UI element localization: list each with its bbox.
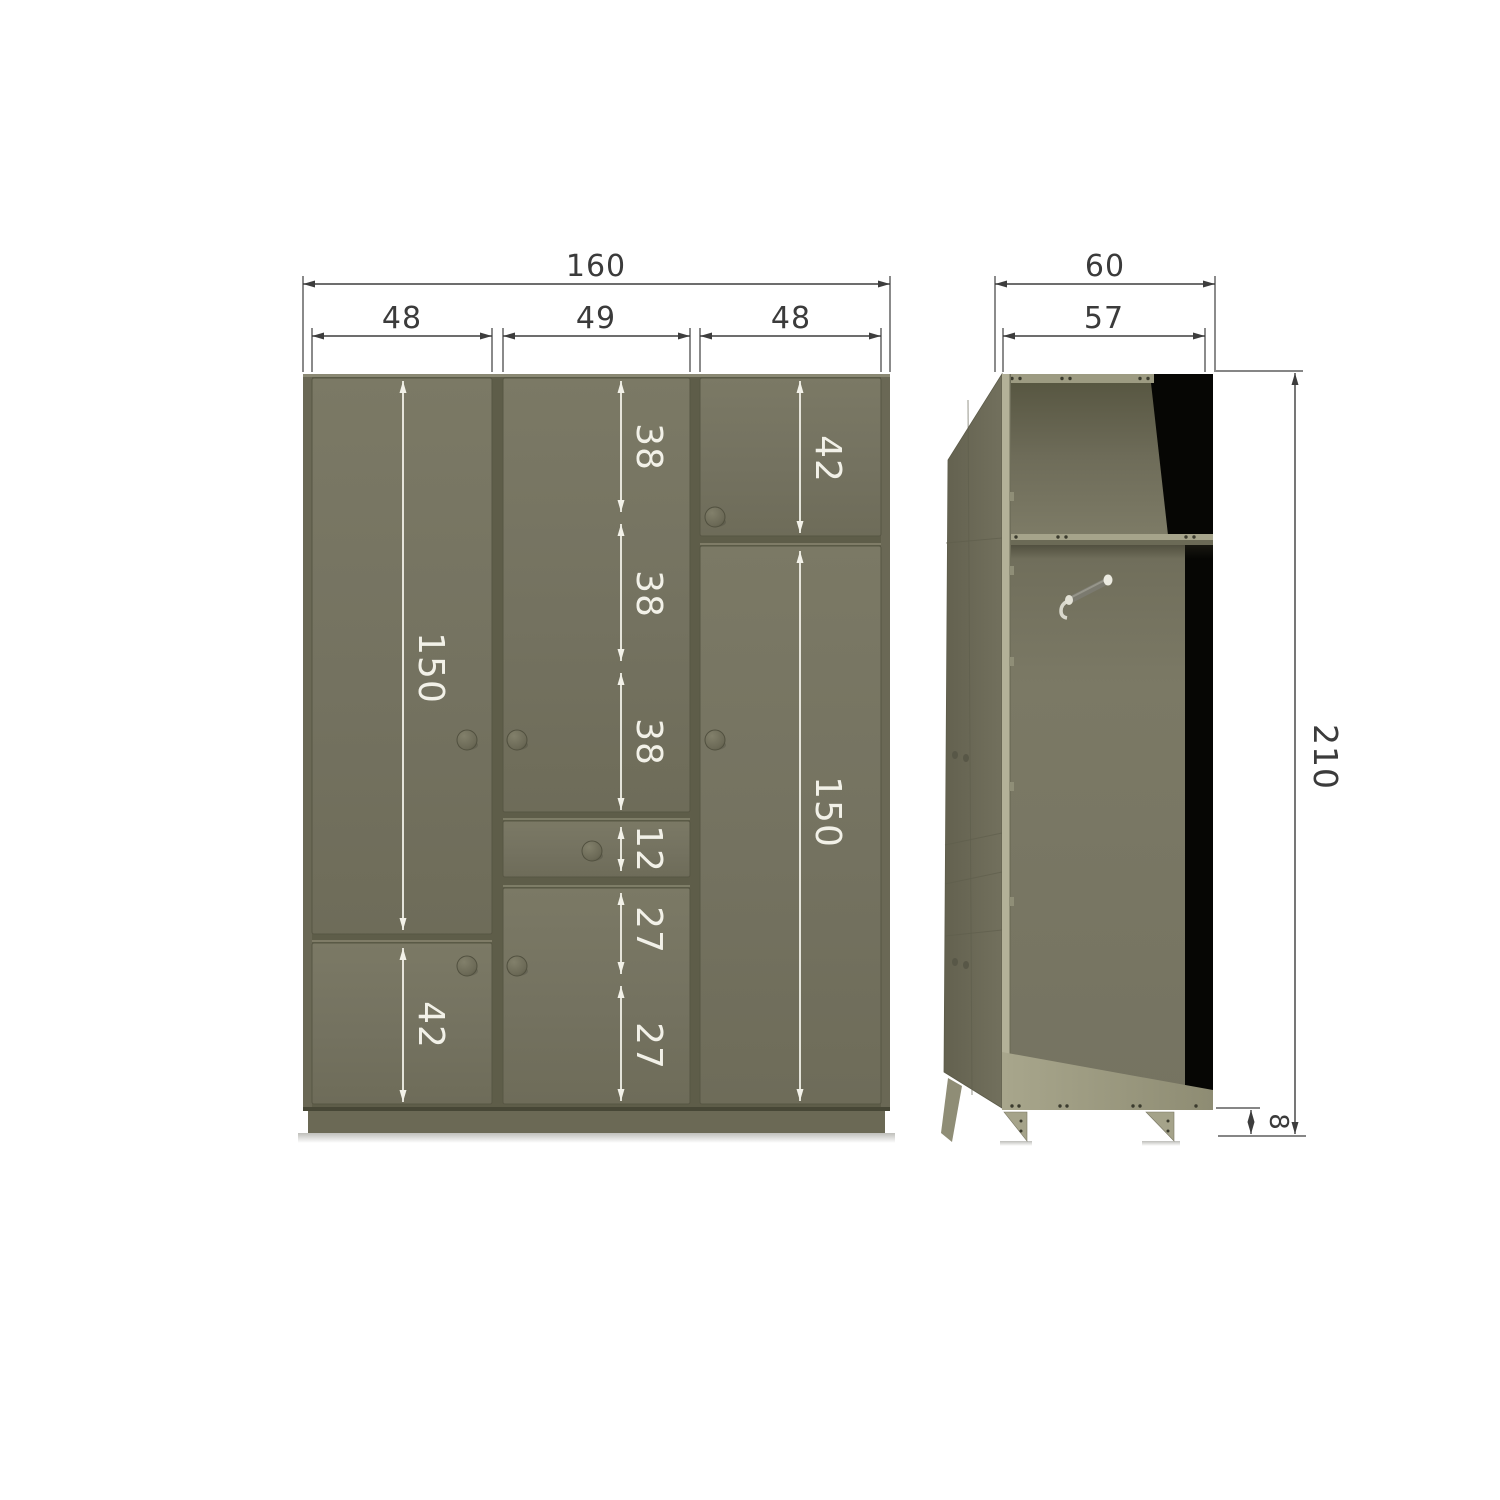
front-left-side-panel [303,374,312,1107]
dim-front-col3-width: 48 [771,301,811,336]
dim-mid-seg1: 38 [628,423,669,471]
plinth-shadow-line [303,1107,890,1111]
dim-side-foot-height: 8 [1263,1113,1293,1131]
page-background: 160 48 49 48 150 42 38 38 [0,0,1500,1500]
dim-side-height-total: 210 [1306,724,1345,790]
inner-wall-edge-line [1010,374,1012,1108]
interior-upper-back [1002,374,1168,540]
door-left-tall [312,378,492,934]
dim-left-door-height: 150 [410,632,451,704]
front-right-side-panel [881,374,890,1107]
side-view: 60 57 210 8 [941,249,1345,1146]
dim-mid-seg2: 38 [628,570,669,618]
dim-right-door-height: 150 [807,776,848,848]
top-panel-edge [1002,374,1154,383]
wardrobe-dimension-diagram: 160 48 49 48 150 42 38 38 [0,0,1500,1500]
side-front-panel [944,374,1002,1108]
front-view: 160 48 49 48 150 42 38 38 [298,249,895,1143]
dim-mid-seg6: 27 [628,1022,669,1070]
front-top-dimensions: 160 48 49 48 [303,249,890,372]
dim-front-col2-width: 49 [576,301,616,336]
inner-wall-edge [1002,374,1010,1108]
front-ground-shadow [298,1133,895,1143]
dim-front-col1-width: 48 [382,301,422,336]
dim-side-depth-inner: 57 [1084,301,1124,336]
plinth [308,1111,885,1133]
door-right-top [700,378,881,536]
dim-mid-seg3: 38 [628,718,669,766]
shelf-top [1002,534,1213,540]
dim-mid-seg5: 27 [628,906,669,954]
interior-lower-side-dark [1185,545,1213,1093]
dim-front-total-width: 160 [566,249,626,284]
dim-right-top-door-height: 42 [807,435,848,483]
shelf-edge [1002,540,1213,545]
dim-side-depth-total: 60 [1085,249,1125,284]
foot-left [1004,1112,1027,1141]
dim-drawer-height: 12 [628,825,669,873]
feet [1000,1112,1180,1146]
interior-lower-back [1002,545,1185,1105]
front-top-edge [303,374,890,377]
shelf-shadow [1002,545,1213,559]
foot-right [1146,1112,1174,1141]
dim-left-lower-door-height: 42 [410,1001,451,1049]
door-right-tall [700,546,881,1104]
side-front-foot [941,1078,962,1142]
